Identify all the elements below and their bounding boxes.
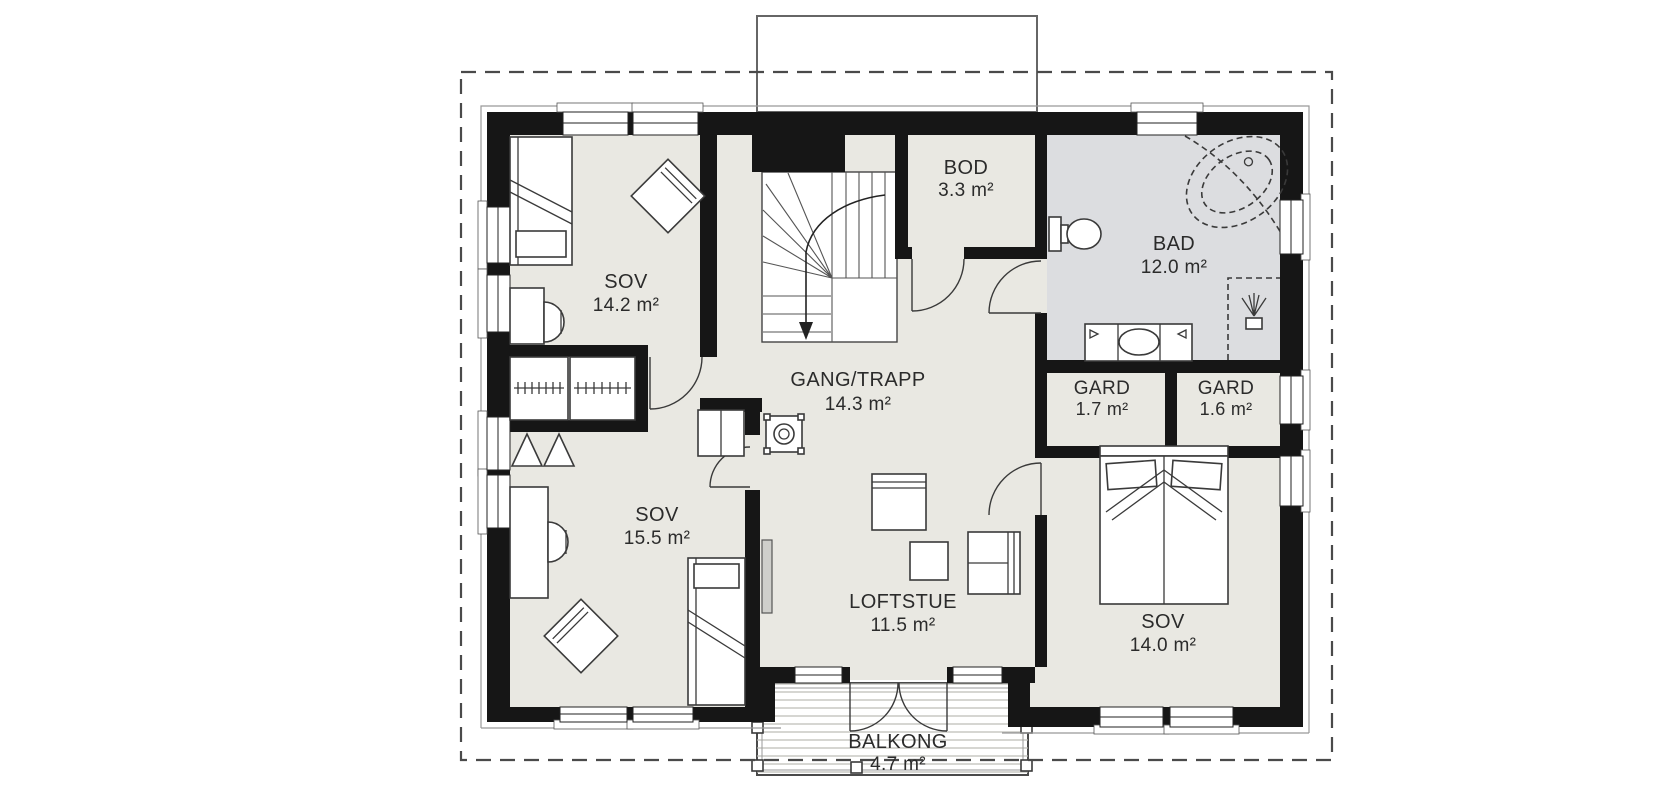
balcony-post-icon [752,760,763,771]
staircase-icon [762,172,897,342]
room-area-gard-2: 1.6 m² [1200,399,1253,419]
armchair-icon [872,474,926,530]
room-area-gard-1: 1.7 m² [1076,399,1129,419]
single-bed-icon [688,558,745,705]
room-label-gard-1: GARD [1074,378,1131,399]
wardrobe-icon [510,357,568,420]
room-label-bod: BOD [944,157,989,179]
room-area-gang-trapp: 14.3 m² [825,394,892,415]
side-table-icon [910,542,948,580]
toilet-icon [1049,217,1101,251]
tv-bench-icon [762,540,772,613]
room-area-loftstue: 11.5 m² [870,615,935,636]
room-label-gard-2: GARD [1198,378,1255,399]
chimney-outline [757,16,1037,112]
room-label-balkong: BALKONG [848,731,948,753]
room-label-sov-3: SOV [1141,611,1185,633]
balcony-post-icon [851,762,862,773]
room-area-sov-3: 14.0 m² [1130,635,1197,656]
floor-plan-canvas: SOV 14.2 m² SOV 15.5 m² GANG/TRAPP 14.3 … [0,0,1670,800]
sink-vanity-icon [1085,324,1192,361]
wardrobe-icon [570,357,635,420]
floor-plan-page: SOV 14.2 m² SOV 15.5 m² GANG/TRAPP 14.3 … [0,0,1670,800]
room-label-sov-2: SOV [635,504,679,526]
room-label-loftstue: LOFTSTUE [849,591,957,613]
double-bed-icon [1100,446,1228,604]
dresser-icon [698,410,744,456]
single-bed-icon [510,137,572,265]
room-area-balkong: 4.7 m² [870,754,926,775]
armchair-icon [968,532,1020,594]
room-area-bad: 12.0 m² [1141,257,1208,278]
room-area-sov-2: 15.5 m² [624,528,691,549]
room-label-gang-trapp: GANG/TRAPP [790,369,925,391]
room-label-sov-1: SOV [604,271,648,293]
wood-stove-icon [764,414,804,454]
room-area-sov-1: 14.2 m² [593,295,660,316]
balcony-post-icon [1021,760,1032,771]
room-label-bad: BAD [1153,233,1195,255]
room-area-bod: 3.3 m² [938,180,994,201]
